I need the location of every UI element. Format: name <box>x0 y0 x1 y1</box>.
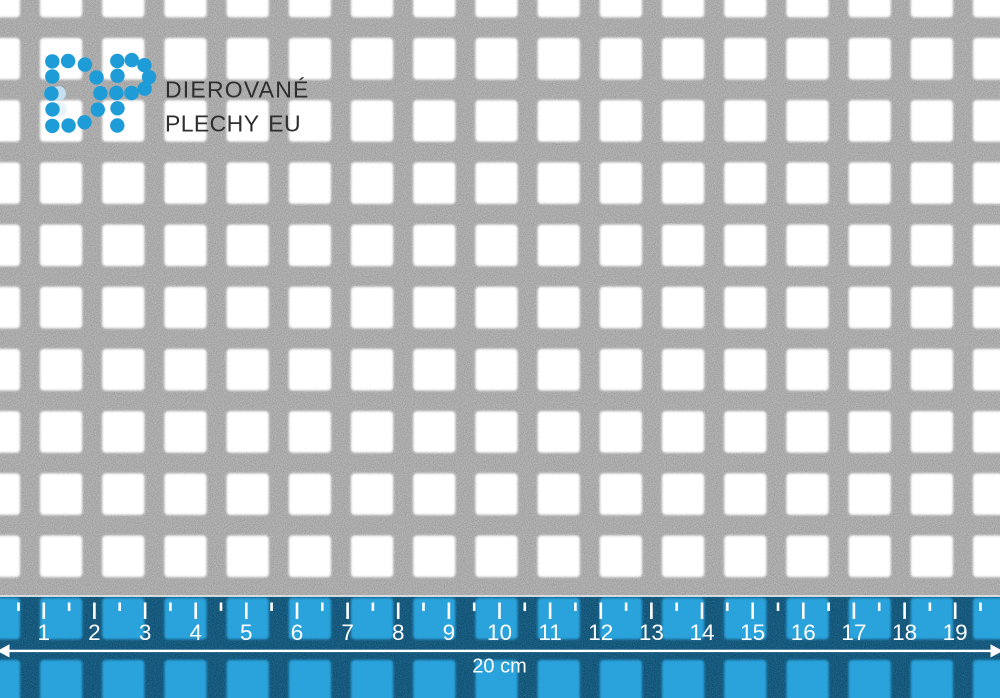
svg-text:20 cm: 20 cm <box>472 655 526 677</box>
svg-text:11: 11 <box>538 620 561 645</box>
svg-text:9: 9 <box>443 620 456 645</box>
svg-text:3: 3 <box>139 620 152 645</box>
svg-text:DIEROVANÉ: DIEROVANÉ <box>165 77 310 103</box>
svg-text:18: 18 <box>892 620 917 645</box>
svg-text:1: 1 <box>38 620 51 645</box>
svg-text:17: 17 <box>841 620 866 645</box>
svg-text:6: 6 <box>291 620 304 645</box>
svg-text:12: 12 <box>588 620 613 645</box>
svg-text:7: 7 <box>341 620 354 645</box>
svg-text:4: 4 <box>189 620 202 645</box>
svg-text:8: 8 <box>392 620 405 645</box>
svg-text:16: 16 <box>791 620 816 645</box>
svg-text:14: 14 <box>689 620 714 645</box>
svg-text:10: 10 <box>487 620 512 645</box>
svg-text:PLECHY EU: PLECHY EU <box>165 111 301 137</box>
svg-text:5: 5 <box>240 620 253 645</box>
svg-text:15: 15 <box>740 620 765 645</box>
svg-text:19: 19 <box>943 620 968 645</box>
svg-text:2: 2 <box>88 620 101 645</box>
svg-text:13: 13 <box>639 620 664 645</box>
